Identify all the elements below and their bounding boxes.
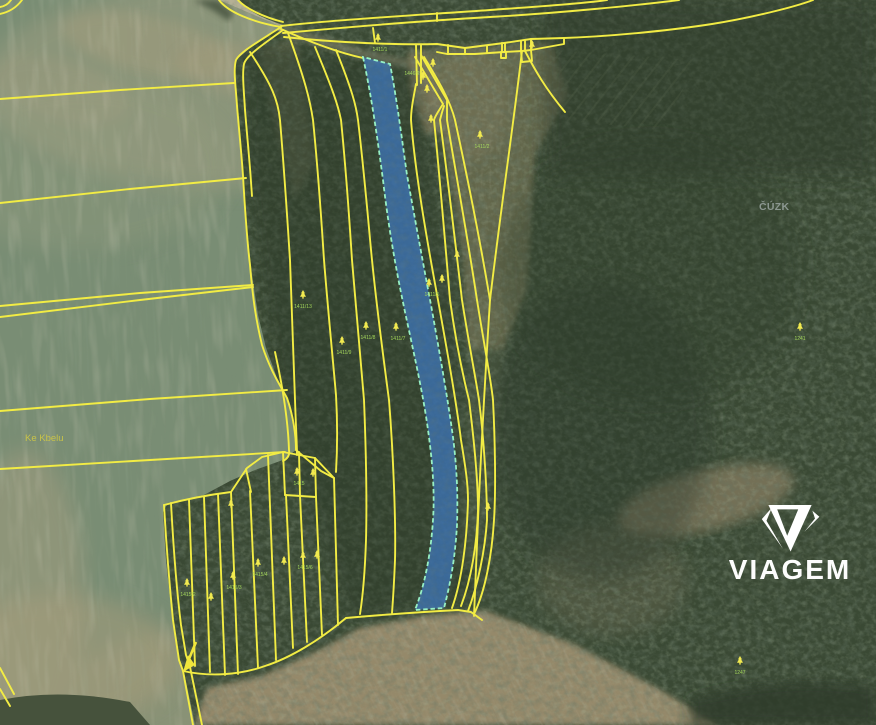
svg-text:1411/13: 1411/13 [294,304,312,310]
svg-text:1247: 1247 [734,670,745,676]
svg-text:1241: 1241 [794,336,805,342]
svg-text:Ke Kbelu: Ke Kbelu [25,433,64,444]
svg-text:1415/2: 1415/2 [180,592,196,598]
svg-text:1415/3: 1415/3 [226,585,242,591]
svg-text:1415/6: 1415/6 [297,565,313,571]
svg-text:1415: 1415 [293,481,304,487]
svg-text:1415/4: 1415/4 [252,572,268,578]
svg-text:ČÚZK: ČÚZK [759,200,789,213]
svg-text:1446/2: 1446/2 [404,71,420,77]
svg-text:1411/9: 1411/9 [337,350,352,356]
svg-text:1411/7: 1411/7 [391,336,406,342]
svg-text:VIAGEM: VIAGEM [729,554,851,585]
svg-text:1411/5: 1411/5 [425,292,440,298]
svg-text:1411/1: 1411/1 [373,47,388,53]
svg-text:1411/2: 1411/2 [475,144,490,150]
svg-text:1411/8: 1411/8 [361,335,376,341]
